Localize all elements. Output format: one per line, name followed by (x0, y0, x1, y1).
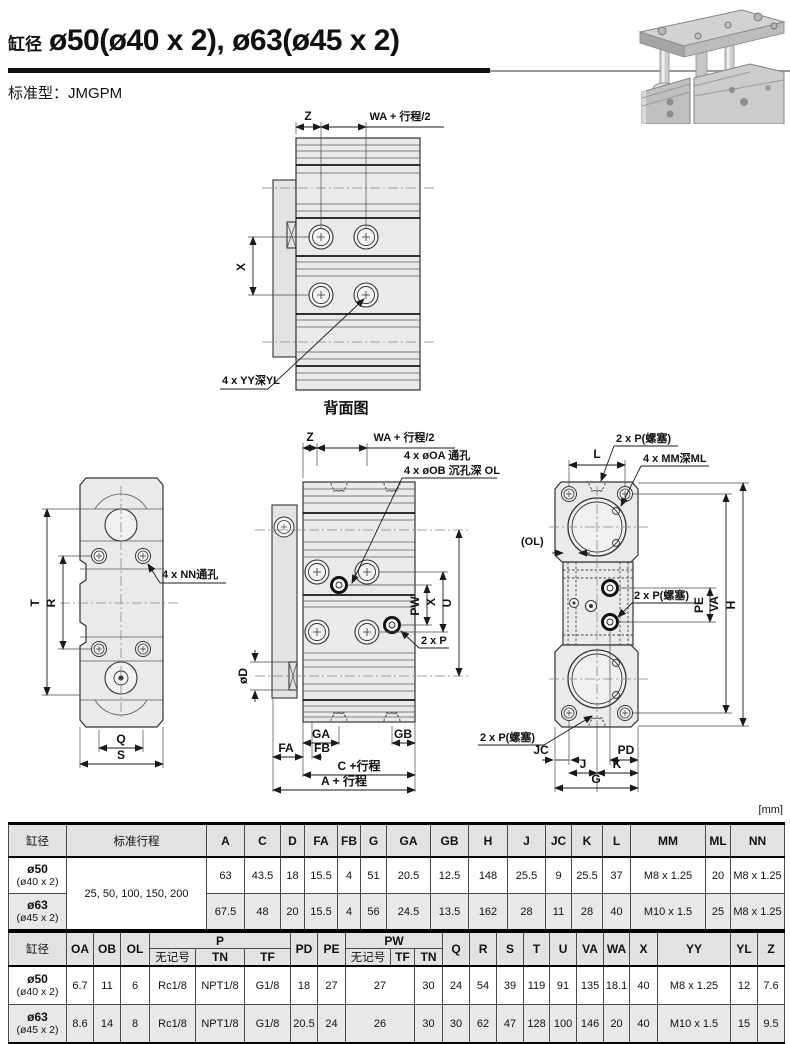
technical-drawings: Z WA + 行程/2 X 4 x YY深YL 背面图 T (0, 100, 790, 815)
data-cell: 20.5 (387, 857, 431, 894)
header-cell: 缸径 (9, 932, 67, 967)
bore-size: ø50 (10, 973, 65, 986)
callout-2xp-plug-bottom: 2 x P(螺塞) (480, 730, 535, 744)
data-cell: 9 (546, 857, 572, 894)
header-cell: H (469, 824, 508, 858)
data-cell: 15.5 (305, 894, 338, 931)
dim-label-a-stroke: A + 行程 (321, 773, 367, 788)
data-cell: 18.1 (604, 966, 630, 1005)
data-cell: 9.5 (758, 1005, 785, 1044)
dim-label-r: R (44, 598, 58, 607)
header-cell: Q (443, 932, 470, 967)
subheader-cell: TF (391, 949, 415, 967)
header-cell: GB (431, 824, 469, 858)
data-cell: 25 (706, 894, 731, 931)
data-cell: 39 (497, 966, 524, 1005)
data-cell: 56 (361, 894, 387, 931)
data-cell: 20.5 (291, 1005, 318, 1044)
subheader-cell: TF (245, 949, 291, 967)
dim-label-t: T (28, 599, 42, 607)
front-view-drawing: Z WA + 行程/2 4 x øOA 通孔 4 x øOB 沉孔深 OL 2 … (236, 430, 500, 792)
callout-yy-holes: 4 x YY深YL (222, 373, 280, 387)
dim-label-ga: GA (312, 727, 330, 741)
data-cell: Rc1/8 (150, 1005, 196, 1044)
bore-size: ø63 (10, 1011, 65, 1024)
data-cell: M8 x 1.25 (731, 857, 785, 894)
dim-label-s: S (117, 748, 125, 762)
data-cell: 28 (572, 894, 603, 931)
end-view-drawing: L 2 x P(螺塞) 4 x MM深ML (OL) 2 x P(螺塞) PE … (478, 431, 749, 792)
data-cell: 54 (470, 966, 497, 1005)
header-cell: D (281, 824, 305, 858)
dim-label-va: VA (707, 596, 721, 612)
stroke-options-cell: 25, 50, 100, 150, 200 (67, 857, 207, 931)
bore-sub: (ø45 x 2) (10, 1024, 65, 1036)
data-cell: NPT1/8 (196, 1005, 245, 1044)
subheader-cell: 无记号 (346, 949, 391, 967)
catalog-page: 缸径 ø50(ø40 x 2), ø63(ø45 x 2) 标准型：JMGPM (0, 0, 790, 1044)
data-cell: 12.5 (431, 857, 469, 894)
dim-label-fb: FB (314, 741, 330, 755)
dim-label-pd: PD (618, 743, 635, 757)
data-cell: 146 (577, 1005, 604, 1044)
header-cell: OA (67, 932, 94, 967)
data-cell: 43.5 (245, 857, 281, 894)
dim-label-x: X (424, 598, 438, 606)
header-group-p: P (150, 932, 291, 949)
callout-2xp-port: 2 x P (421, 635, 447, 647)
data-cell: 91 (550, 966, 577, 1005)
page-title: 缸径 ø50(ø40 x 2), ø63(ø45 x 2) (8, 24, 400, 58)
data-cell: 20 (281, 894, 305, 931)
data-cell: 148 (469, 857, 508, 894)
data-cell: 51 (361, 857, 387, 894)
table-header-row: 缸径 标准行程 A C D FA FB G GA GB H J JC K L M… (9, 824, 785, 858)
data-cell: G1/8 (245, 966, 291, 1005)
header-cell: FB (338, 824, 361, 858)
data-cell: 67.5 (207, 894, 245, 931)
dim-label-j: J (580, 757, 587, 771)
subheader-cell: TN (415, 949, 443, 967)
callout-ob-counterbore: 4 x øOB 沉孔深 OL (404, 463, 500, 477)
data-cell: 119 (524, 966, 550, 1005)
dim-label-u: U (440, 599, 454, 608)
data-cell: M8 x 1.25 (731, 894, 785, 931)
header-cell: WA (604, 932, 630, 967)
data-cell: 40 (603, 894, 631, 931)
bore-sub: (ø40 x 2) (10, 986, 65, 998)
data-cell: NPT1/8 (196, 966, 245, 1005)
data-cell: 20 (604, 1005, 630, 1044)
header-cell: R (470, 932, 497, 967)
header-cell: K (572, 824, 603, 858)
back-view-caption: 背面图 (323, 399, 368, 417)
header-cell: A (207, 824, 245, 858)
callout-mm-thread: 4 x MM深ML (643, 451, 707, 465)
data-cell: M8 x 1.25 (631, 857, 706, 894)
header-cell: G (361, 824, 387, 858)
data-cell: 6 (121, 966, 150, 1005)
dim-label-fa: FA (278, 741, 294, 755)
header-cell: C (245, 824, 281, 858)
bore-cell: ø50(ø40 x 2) (9, 966, 67, 1005)
data-cell: 8.6 (67, 1005, 94, 1044)
dim-label-l: L (593, 447, 600, 461)
bore-cell: ø63(ø45 x 2) (9, 1005, 67, 1044)
data-cell: 12 (731, 966, 758, 1005)
dim-label-gb: GB (394, 727, 412, 741)
header-cell: L (603, 824, 631, 858)
data-cell: 13.5 (431, 894, 469, 931)
header-cell: GA (387, 824, 431, 858)
data-cell: 62 (470, 1005, 497, 1044)
data-cell: 30 (415, 966, 443, 1005)
bore-cell: ø63(ø45 x 2) (9, 894, 67, 931)
data-cell: 18 (291, 966, 318, 1005)
data-cell: 26 (346, 1005, 415, 1044)
dim-label-pe: PE (692, 597, 706, 613)
dimensions-table-1: 缸径 标准行程 A C D FA FB G GA GB H J JC K L M… (8, 822, 785, 932)
title-underline (8, 68, 490, 73)
data-cell: 7.6 (758, 966, 785, 1005)
dim-label-wa-stroke: WA + 行程/2 (373, 430, 434, 444)
data-cell: 37 (603, 857, 631, 894)
data-cell: 24.5 (387, 894, 431, 931)
header-cell: S (497, 932, 524, 967)
data-cell: G1/8 (245, 1005, 291, 1044)
header-cell: X (630, 932, 658, 967)
bore-sub: (ø45 x 2) (10, 912, 65, 924)
data-cell: 27 (346, 966, 415, 1005)
header-cell: 标准行程 (67, 824, 207, 858)
data-cell: 30 (415, 1005, 443, 1044)
dim-label-jc: JC (533, 743, 549, 757)
data-cell: 63 (207, 857, 245, 894)
callout-2xp-plug-top: 2 x P(螺塞) (616, 431, 671, 445)
dimensions-table-2: 缸径 OA OB OL P PD PE PW Q R S T U VA WA X… (8, 930, 785, 1044)
side-view-drawing: T R 4 x NN通孔 Q S (28, 478, 226, 768)
header-cell: JC (546, 824, 572, 858)
header-cell: 缸径 (9, 824, 67, 858)
bore-sub: (ø40 x 2) (10, 876, 65, 888)
data-cell: 15.5 (305, 857, 338, 894)
data-cell: 4 (338, 857, 361, 894)
header-cell: OL (121, 932, 150, 967)
back-view-drawing: Z WA + 行程/2 X 4 x YY深YL 背面图 (220, 109, 444, 417)
data-cell: 6.7 (67, 966, 94, 1005)
dim-label-x: X (234, 263, 248, 271)
data-cell: M8 x 1.25 (658, 966, 731, 1005)
header-cell: PD (291, 932, 318, 967)
callout-2xp-plug-mid: 2 x P(螺塞) (634, 588, 689, 602)
table-row: ø63(ø45 x 2) 8.6 14 8 Rc1/8 NPT1/8 G1/8 … (9, 1005, 785, 1044)
bore-size: ø63 (10, 899, 65, 912)
table-row: ø50(ø40 x 2) 25, 50, 100, 150, 200 63 43… (9, 857, 785, 894)
dim-label-z: Z (306, 430, 313, 444)
data-cell: 100 (550, 1005, 577, 1044)
data-cell: 4 (338, 894, 361, 931)
header-cell: PE (318, 932, 346, 967)
data-cell: 48 (245, 894, 281, 931)
data-cell: 135 (577, 966, 604, 1005)
header-cell: Z (758, 932, 785, 967)
data-cell: Rc1/8 (150, 966, 196, 1005)
data-cell: 162 (469, 894, 508, 931)
table-header-row: 缸径 OA OB OL P PD PE PW Q R S T U VA WA X… (9, 932, 785, 949)
title-prefix: 缸径 (8, 30, 42, 55)
dim-label-pw: PW (408, 596, 422, 616)
data-cell: 24 (318, 1005, 346, 1044)
dim-label-wa-stroke: WA + 行程/2 (369, 109, 430, 123)
header-cell: J (508, 824, 546, 858)
dim-label-z: Z (304, 109, 311, 123)
dim-label-h: H (724, 601, 738, 610)
dim-label-k: K (613, 757, 622, 771)
bore-size: ø50 (10, 863, 65, 876)
data-cell: 47 (497, 1005, 524, 1044)
data-cell: M10 x 1.5 (658, 1005, 731, 1044)
callout-oa-holes: 4 x øOA 通孔 (404, 449, 470, 462)
header-cell: NN (731, 824, 785, 858)
data-cell: 24 (443, 966, 470, 1005)
header-cell: ML (706, 824, 731, 858)
header-cell: MM (631, 824, 706, 858)
header-cell: U (550, 932, 577, 967)
dim-label-rod-diameter: øD (236, 668, 250, 684)
data-cell: 18 (281, 857, 305, 894)
data-cell: 8 (121, 1005, 150, 1044)
header-cell: VA (577, 932, 604, 967)
subheader-cell: 无记号 (150, 949, 196, 967)
data-cell: 128 (524, 1005, 550, 1044)
data-cell: 27 (318, 966, 346, 1005)
dim-label-c-stroke: C +行程 (337, 758, 380, 773)
data-cell: 20 (706, 857, 731, 894)
data-cell: 11 (546, 894, 572, 931)
callout-nn-holes: 4 x NN通孔 (162, 568, 218, 581)
data-cell: M10 x 1.5 (631, 894, 706, 931)
table-row: ø50(ø40 x 2) 6.7 11 6 Rc1/8 NPT1/8 G1/8 … (9, 966, 785, 1005)
bore-cell: ø50(ø40 x 2) (9, 857, 67, 894)
data-cell: 28 (508, 894, 546, 931)
data-cell: 40 (630, 966, 658, 1005)
data-cell: 30 (443, 1005, 470, 1044)
header-cell: FA (305, 824, 338, 858)
header-cell: YY (658, 932, 731, 967)
header-cell: YL (731, 932, 758, 967)
units-note: [mm] (759, 804, 783, 815)
data-cell: 25.5 (572, 857, 603, 894)
data-cell: 11 (94, 966, 121, 1005)
data-cell: 14 (94, 1005, 121, 1044)
dim-label-ol: (OL) (521, 536, 544, 548)
header-group-pw: PW (346, 932, 443, 949)
data-cell: 25.5 (508, 857, 546, 894)
dim-label-q: Q (116, 732, 125, 746)
header-cell: T (524, 932, 550, 967)
header-cell: OB (94, 932, 121, 967)
dim-label-g: G (591, 772, 600, 786)
title-bore-sizes: ø50(ø40 x 2), ø63(ø45 x 2) (49, 24, 400, 58)
data-cell: 40 (630, 1005, 658, 1044)
subheader-cell: TN (196, 949, 245, 967)
data-cell: 15 (731, 1005, 758, 1044)
